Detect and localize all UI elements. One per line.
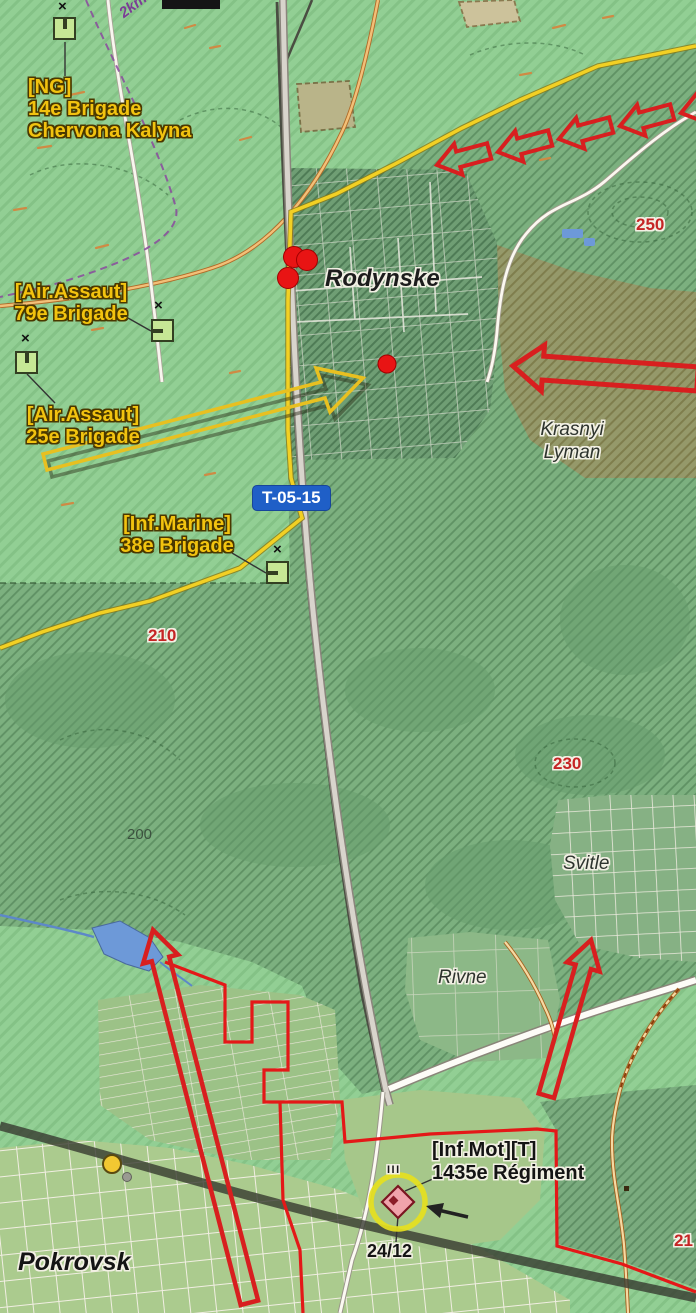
x-marker: × bbox=[21, 330, 30, 347]
place-label-pokrovsk: Pokrovsk bbox=[18, 1248, 131, 1277]
unit-label-airassault-79: [Air.Assaut] 79e Brigade bbox=[10, 281, 132, 325]
unit-icon-ng-14 bbox=[53, 17, 76, 40]
map-canvas bbox=[0, 0, 696, 1313]
unit-label-marine-38: [Inf.Marine] 38e Brigade bbox=[116, 513, 238, 557]
road-shield-t0515: T-05-15 bbox=[252, 485, 331, 511]
date-marker: 24/12 bbox=[367, 1241, 412, 1262]
unit-icon-glyph bbox=[152, 329, 163, 333]
unit-icon-airassault-25 bbox=[15, 351, 38, 374]
elevation-200: 200 bbox=[127, 826, 152, 843]
unit-icon-glyph bbox=[63, 18, 67, 29]
unit-label-motorized-1435: [Inf.Mot][T] 1435e Régiment bbox=[432, 1139, 584, 1185]
unit-label-airassault-25: [Air.Assaut] 25e Brigade bbox=[22, 404, 144, 448]
place-label-rodynske: Rodynske bbox=[325, 265, 440, 293]
rodynske-area bbox=[289, 168, 499, 460]
elevation-210: 210 bbox=[148, 626, 176, 646]
place-label-svitle: Svitle bbox=[563, 852, 609, 875]
elevation-21x-clipped: 21 bbox=[674, 1231, 693, 1251]
unit-icon-glyph bbox=[267, 571, 278, 575]
unit-icon-marine-38 bbox=[266, 561, 289, 584]
place-label-krasnyi-lyman: Krasnyi Lyman bbox=[512, 418, 632, 464]
clipped-label-box bbox=[162, 0, 220, 9]
elevation-230: 230 bbox=[553, 754, 581, 774]
elevation-250: 250 bbox=[636, 215, 664, 235]
x-marker: × bbox=[154, 297, 163, 314]
situation-map: [NG] 14e Brigade Chervona Kalyna [Air.As… bbox=[0, 0, 696, 1313]
x-marker: × bbox=[58, 0, 67, 15]
unit-icon-airassault-79 bbox=[151, 319, 174, 342]
x-marker: × bbox=[273, 541, 282, 558]
place-label-rivne: Rivne bbox=[438, 966, 487, 989]
yellow-dot bbox=[103, 1155, 121, 1173]
unit-label-ng-14: [NG] 14e Brigade Chervona Kalyna bbox=[28, 76, 191, 142]
unit-size-marker: III bbox=[387, 1164, 401, 1176]
gray-dot bbox=[123, 1173, 132, 1182]
unit-icon-glyph bbox=[25, 352, 29, 363]
